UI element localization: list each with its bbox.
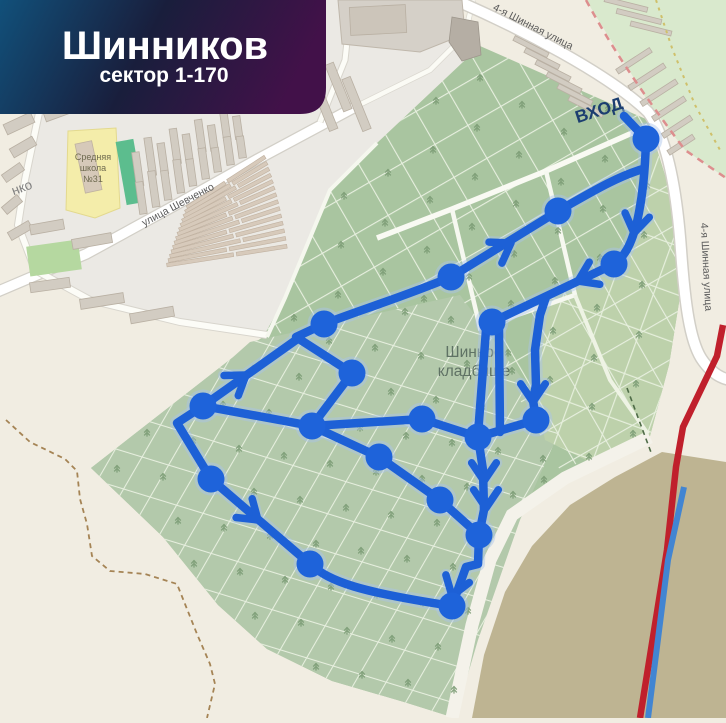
svg-text:Средняя: Средняя bbox=[75, 152, 111, 162]
svg-text:№31: №31 bbox=[83, 174, 103, 184]
svg-text:школа: школа bbox=[80, 163, 106, 173]
svg-text:Шинников: Шинников bbox=[62, 24, 268, 68]
svg-text:сектор 1-170: сектор 1-170 bbox=[99, 64, 228, 87]
